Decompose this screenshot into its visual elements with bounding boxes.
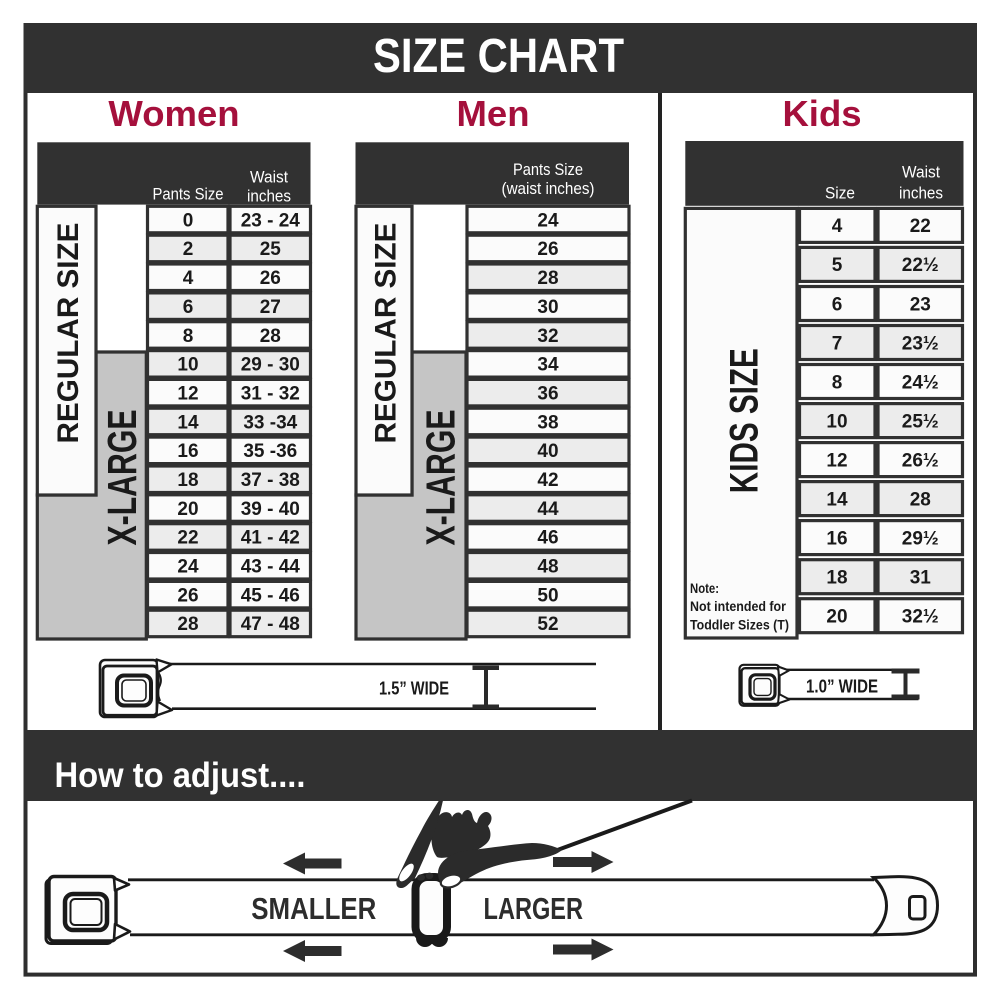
svg-text:23 - 24: 23 - 24 bbox=[241, 210, 301, 231]
svg-text:37 - 38: 37 - 38 bbox=[241, 470, 300, 491]
svg-text:39 - 40: 39 - 40 bbox=[241, 499, 300, 520]
svg-text:26: 26 bbox=[260, 268, 281, 289]
svg-text:41 - 42: 41 - 42 bbox=[241, 528, 300, 549]
svg-text:23: 23 bbox=[910, 294, 931, 315]
svg-text:Note:: Note: bbox=[690, 580, 719, 596]
svg-text:24½: 24½ bbox=[902, 372, 939, 393]
svg-text:Size: Size bbox=[825, 184, 855, 203]
svg-text:12: 12 bbox=[826, 450, 847, 471]
svg-text:inches: inches bbox=[899, 184, 943, 203]
svg-text:Pants Size: Pants Size bbox=[153, 185, 224, 204]
svg-text:26: 26 bbox=[537, 239, 558, 260]
svg-text:27: 27 bbox=[260, 297, 281, 318]
svg-text:26½: 26½ bbox=[902, 450, 939, 471]
svg-text:45 - 46: 45 - 46 bbox=[241, 585, 300, 606]
svg-text:38: 38 bbox=[537, 412, 558, 433]
svg-text:0: 0 bbox=[183, 210, 194, 231]
svg-text:Women: Women bbox=[108, 93, 239, 134]
svg-text:20: 20 bbox=[177, 499, 198, 520]
svg-text:14: 14 bbox=[826, 489, 848, 510]
svg-text:46: 46 bbox=[537, 528, 558, 549]
svg-text:2: 2 bbox=[183, 239, 194, 260]
svg-text:4: 4 bbox=[183, 268, 194, 289]
svg-text:Kids: Kids bbox=[782, 93, 861, 134]
svg-text:22½: 22½ bbox=[902, 255, 939, 276]
svg-text:16: 16 bbox=[177, 441, 198, 462]
svg-text:REGULAR SIZE: REGULAR SIZE bbox=[52, 223, 85, 444]
svg-text:43 - 44: 43 - 44 bbox=[241, 557, 301, 578]
svg-text:SIZE CHART: SIZE CHART bbox=[373, 30, 624, 83]
svg-text:REGULAR SIZE: REGULAR SIZE bbox=[370, 223, 403, 444]
svg-text:48: 48 bbox=[537, 557, 558, 578]
svg-text:34: 34 bbox=[537, 355, 559, 376]
svg-text:28: 28 bbox=[537, 268, 558, 289]
svg-text:23½: 23½ bbox=[902, 333, 939, 354]
svg-text:47 - 48: 47 - 48 bbox=[241, 614, 300, 635]
svg-text:LARGER: LARGER bbox=[484, 891, 584, 926]
svg-text:10: 10 bbox=[826, 411, 847, 432]
svg-text:52: 52 bbox=[537, 614, 558, 635]
svg-text:24: 24 bbox=[177, 557, 199, 578]
svg-text:18: 18 bbox=[177, 470, 198, 491]
svg-text:10: 10 bbox=[177, 355, 198, 376]
svg-text:31 - 32: 31 - 32 bbox=[241, 384, 300, 405]
svg-text:Not intended for: Not intended for bbox=[690, 598, 786, 614]
svg-text:16: 16 bbox=[826, 528, 847, 549]
svg-text:20: 20 bbox=[826, 607, 847, 628]
svg-text:5: 5 bbox=[832, 255, 843, 276]
svg-text:28: 28 bbox=[177, 614, 198, 635]
svg-text:29 - 30: 29 - 30 bbox=[241, 355, 300, 376]
svg-text:18: 18 bbox=[826, 568, 847, 589]
svg-text:1.0” WIDE: 1.0” WIDE bbox=[806, 677, 878, 697]
svg-text:22: 22 bbox=[177, 528, 198, 549]
svg-text:29½: 29½ bbox=[902, 528, 939, 549]
svg-text:25: 25 bbox=[260, 239, 282, 260]
svg-text:42: 42 bbox=[537, 470, 558, 491]
svg-text:36: 36 bbox=[537, 384, 558, 405]
svg-text:X-LARGE: X-LARGE bbox=[99, 410, 145, 546]
svg-text:6: 6 bbox=[183, 297, 194, 318]
svg-text:28: 28 bbox=[260, 326, 281, 347]
svg-text:22: 22 bbox=[910, 216, 931, 237]
svg-text:1.5” WIDE: 1.5” WIDE bbox=[379, 679, 449, 699]
svg-text:50: 50 bbox=[537, 585, 558, 606]
svg-text:35 -36: 35 -36 bbox=[243, 441, 297, 462]
svg-text:32: 32 bbox=[537, 326, 558, 347]
svg-text:33 -34: 33 -34 bbox=[243, 412, 297, 433]
svg-text:24: 24 bbox=[537, 210, 559, 231]
svg-text:12: 12 bbox=[177, 384, 198, 405]
svg-text:25½: 25½ bbox=[902, 411, 939, 432]
svg-text:4: 4 bbox=[832, 216, 843, 237]
svg-text:SMALLER: SMALLER bbox=[251, 891, 376, 926]
svg-text:Men: Men bbox=[457, 93, 530, 134]
svg-text:28: 28 bbox=[910, 489, 931, 510]
svg-text:30: 30 bbox=[537, 297, 558, 318]
svg-text:How to adjust....: How to adjust.... bbox=[55, 756, 306, 795]
svg-text:40: 40 bbox=[537, 441, 558, 462]
svg-text:32½: 32½ bbox=[902, 607, 939, 628]
svg-text:14: 14 bbox=[177, 412, 199, 433]
svg-text:31: 31 bbox=[910, 568, 932, 589]
svg-text:26: 26 bbox=[177, 585, 198, 606]
svg-text:6: 6 bbox=[832, 294, 843, 315]
svg-text:(waist inches): (waist inches) bbox=[502, 179, 595, 198]
svg-text:Pants Size: Pants Size bbox=[513, 160, 583, 179]
svg-text:Waist: Waist bbox=[902, 163, 940, 182]
svg-text:KIDS SIZE: KIDS SIZE bbox=[723, 348, 767, 493]
svg-text:Waist: Waist bbox=[250, 168, 288, 187]
svg-text:inches: inches bbox=[247, 187, 291, 206]
svg-text:44: 44 bbox=[537, 499, 559, 520]
svg-text:Toddler Sizes (T): Toddler Sizes (T) bbox=[690, 617, 789, 633]
svg-text:8: 8 bbox=[832, 372, 843, 393]
svg-text:8: 8 bbox=[183, 326, 194, 347]
svg-text:7: 7 bbox=[832, 333, 843, 354]
svg-text:X-LARGE: X-LARGE bbox=[418, 410, 464, 546]
